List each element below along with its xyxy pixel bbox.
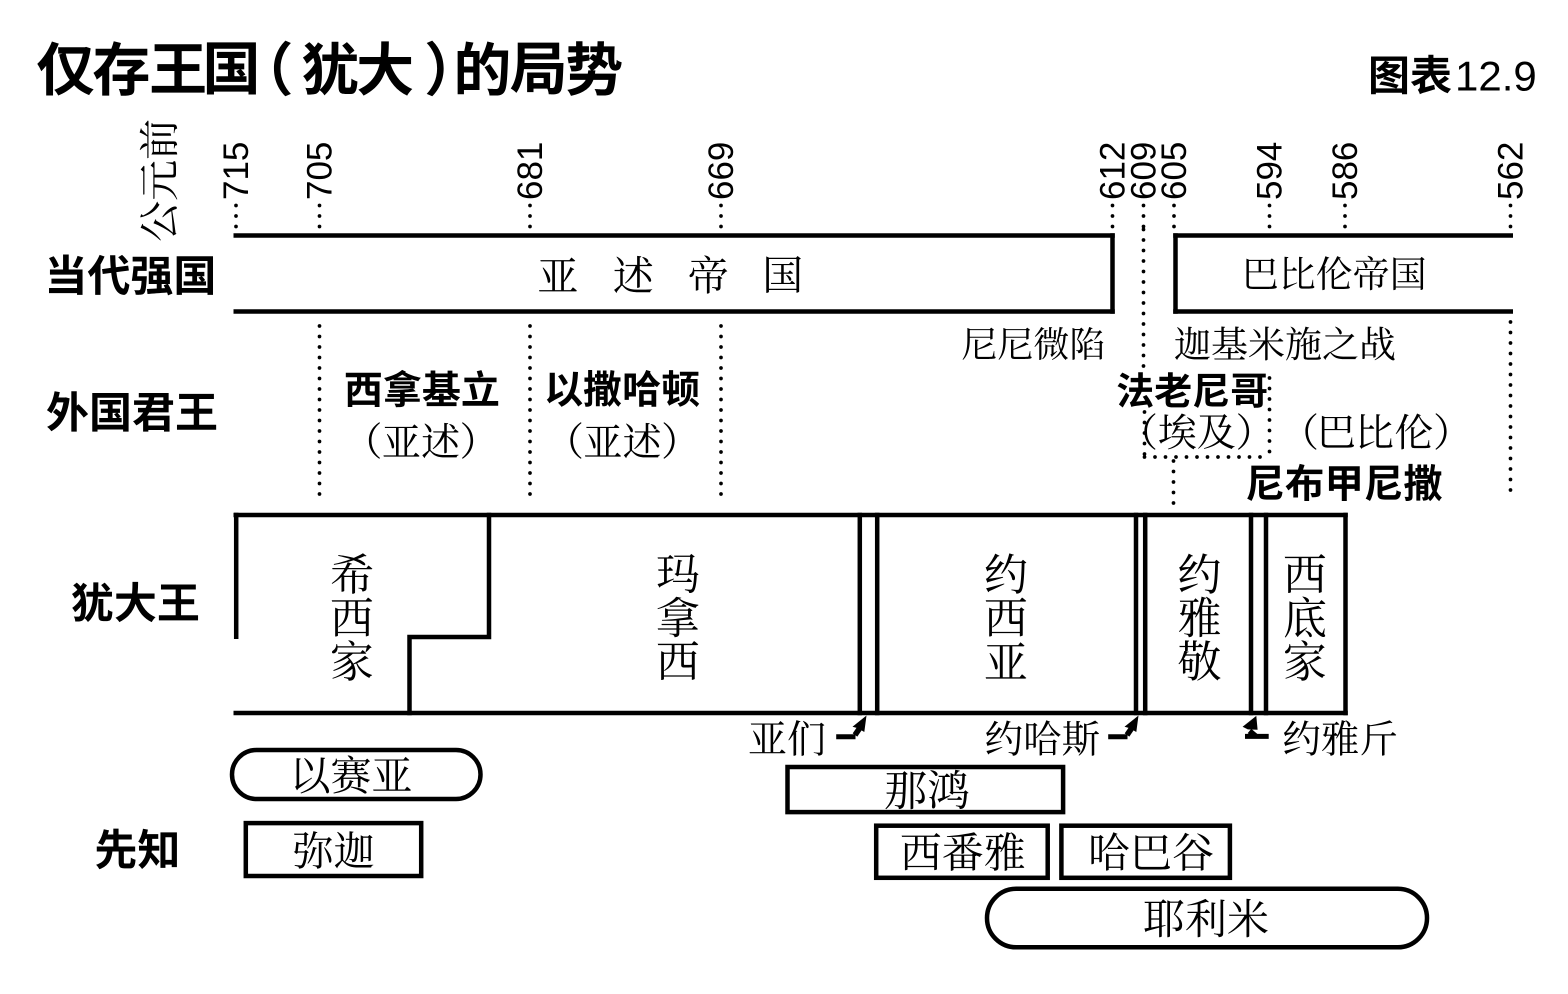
svg-text:681: 681 [511,142,550,200]
svg-text:562: 562 [1492,142,1531,200]
svg-text:594: 594 [1251,142,1290,200]
svg-text:605: 605 [1155,142,1194,200]
svg-text:715: 715 [217,142,256,200]
svg-text:586: 586 [1326,142,1365,200]
svg-text:12.9: 12.9 [1455,53,1537,100]
svg-text:669: 669 [702,142,741,200]
svg-text:705: 705 [301,142,340,200]
